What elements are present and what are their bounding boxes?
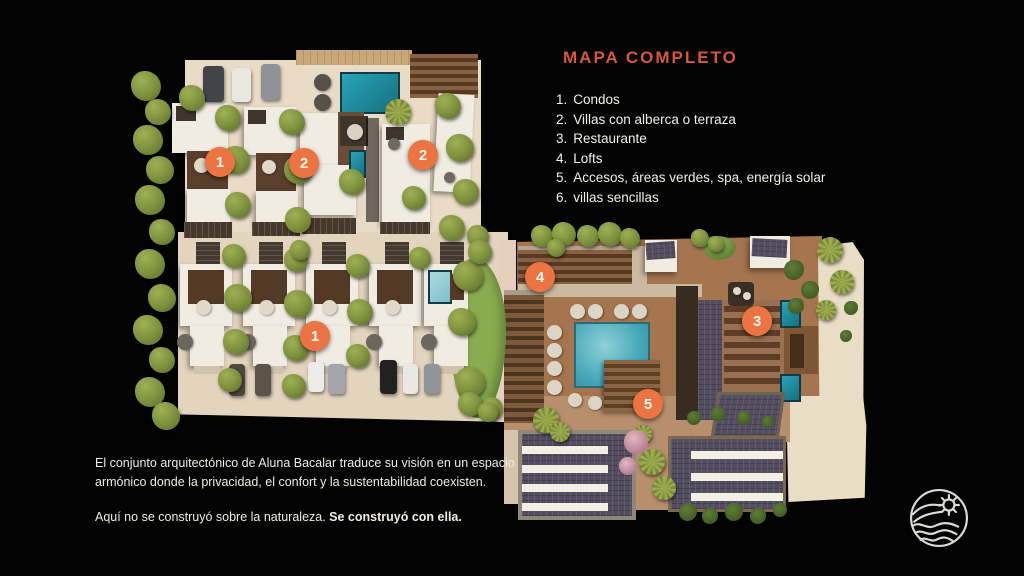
tree	[547, 239, 565, 257]
pool-lounger	[570, 304, 585, 319]
condo-terrace	[377, 270, 413, 304]
pool-lounger	[614, 304, 629, 319]
map-marker-villas: 2	[289, 148, 319, 178]
tree	[339, 169, 365, 195]
tree	[218, 368, 242, 392]
pool-lounger	[314, 94, 331, 111]
tree	[347, 299, 373, 325]
pool-lounger	[547, 343, 562, 358]
legend-item-villas-sencillas: 6.villas sencillas	[556, 188, 896, 208]
tree	[179, 85, 205, 111]
wood-walkway	[296, 50, 412, 65]
solar-walk-stripe	[522, 503, 608, 511]
roof-vent	[444, 172, 455, 183]
solar-array	[518, 430, 636, 520]
shrub	[750, 508, 766, 524]
palm-tree	[817, 237, 843, 263]
dining-table	[733, 287, 741, 295]
palm-tree	[816, 300, 836, 320]
condo-roof-palapa	[259, 242, 283, 266]
palm-tree	[652, 476, 676, 500]
wave-sun-logo-icon	[908, 487, 970, 549]
villa-balcony	[184, 222, 232, 238]
pool-lounger	[547, 325, 562, 340]
tree	[478, 402, 498, 422]
legend-item-villas: 2.Villas con alberca o terraza	[556, 110, 896, 130]
bar-counter	[790, 334, 804, 368]
tree	[135, 185, 165, 215]
condo-roof-pool	[428, 270, 452, 304]
description-text: El conjunto arquitectónico de Aluna Baca…	[95, 454, 525, 527]
page-title: MAPA COMPLETO	[563, 48, 896, 68]
tree	[468, 240, 492, 264]
pool-lounger	[347, 124, 363, 140]
palm-tree	[385, 99, 411, 125]
legend-item-accesos: 5.Accesos, áreas verdes, spa, energía so…	[556, 168, 896, 188]
tree	[290, 240, 310, 260]
patio-umbrella	[177, 334, 193, 350]
pool-lounger	[314, 74, 331, 91]
alley-shadow	[366, 118, 379, 222]
villa-patio	[248, 110, 266, 124]
pergola-deck	[410, 54, 478, 98]
shaded-walkway	[676, 286, 698, 420]
legend-list: 1.Condos 2.Villas con alberca o terraza …	[556, 90, 896, 207]
sand-wedge	[786, 396, 868, 502]
palm-tree	[830, 270, 854, 294]
condo-building	[253, 326, 287, 366]
parked-car	[255, 364, 271, 396]
tree	[133, 125, 163, 155]
condo-porch	[194, 366, 220, 374]
terrace-table	[385, 300, 400, 315]
parked-car	[308, 362, 324, 392]
solar-walk-stripe	[522, 446, 608, 454]
tree	[691, 229, 709, 247]
tree	[453, 261, 483, 291]
solar-roof	[752, 238, 788, 258]
tree	[577, 225, 599, 247]
tree	[223, 329, 249, 355]
palm-tree	[639, 449, 665, 475]
parked-car	[203, 66, 224, 102]
condo-terrace	[188, 270, 224, 304]
legend-item-lofts: 4.Lofts	[556, 149, 896, 169]
condo-terrace	[314, 270, 350, 304]
shrub	[702, 508, 718, 524]
tree	[224, 284, 252, 312]
tree	[346, 344, 370, 368]
tree	[282, 374, 306, 398]
tree	[446, 134, 474, 162]
map-marker-villas: 2	[408, 140, 438, 170]
map-marker-condos: 1	[205, 147, 235, 177]
pool-lounger	[568, 393, 582, 407]
tree	[131, 71, 161, 101]
pool-lounger	[547, 380, 562, 395]
patio-umbrella	[366, 334, 382, 350]
tree	[222, 244, 246, 268]
condo-roof-palapa	[196, 242, 220, 266]
solar-walk-stripe	[522, 465, 608, 473]
description-paragraph-2: Aquí no se construyó sobre la naturaleza…	[95, 508, 525, 527]
pool-lounger	[632, 304, 647, 319]
tree	[620, 228, 640, 248]
tree	[135, 249, 165, 279]
tree	[133, 315, 163, 345]
pool-lounger	[588, 396, 602, 410]
condo-roof-palapa	[322, 242, 346, 266]
tree	[453, 179, 479, 205]
solar-walk-stripe	[691, 493, 783, 501]
tree	[285, 207, 311, 233]
parked-car	[328, 364, 345, 394]
legend-panel: MAPA COMPLETO 1.Condos 2.Villas con albe…	[556, 48, 896, 207]
spa-pergola	[504, 290, 544, 423]
patio-umbrella	[421, 334, 437, 350]
shrub	[773, 503, 787, 517]
solar-walk-stripe	[691, 473, 783, 481]
condo-roof-palapa	[385, 242, 409, 266]
tree	[402, 186, 426, 210]
solar-walk-stripe	[691, 451, 783, 459]
solar-array	[668, 436, 786, 512]
tree	[435, 93, 461, 119]
tree	[215, 105, 241, 131]
legend-item-restaurante: 3.Restaurante	[556, 129, 896, 149]
condo-terrace	[251, 270, 287, 304]
legend-item-condos: 1.Condos	[556, 90, 896, 110]
parked-car	[232, 68, 251, 102]
shrub	[679, 503, 697, 521]
villa-balcony	[380, 222, 430, 234]
map-marker-lofts: 4	[525, 262, 555, 292]
pool-lounger	[547, 361, 562, 376]
terrace-table	[259, 300, 274, 315]
map-marker-spa: 5	[633, 389, 663, 419]
dining-table	[743, 292, 751, 300]
terrace-table	[262, 160, 276, 174]
map-marker-condos: 1	[300, 321, 330, 351]
tree	[148, 284, 176, 312]
description-paragraph-1: El conjunto arquitectónico de Aluna Baca…	[95, 454, 525, 492]
tree	[152, 402, 180, 430]
parked-car	[261, 64, 280, 100]
terrace-table	[322, 300, 337, 315]
palm-tree	[550, 422, 570, 442]
shrub	[725, 503, 743, 521]
tree	[448, 308, 476, 336]
tree	[146, 156, 174, 184]
tree	[279, 109, 305, 135]
tree	[149, 219, 175, 245]
terrace-table	[196, 300, 211, 315]
roof-vent	[388, 138, 400, 150]
restaurant-table-row	[724, 378, 780, 384]
tree	[598, 222, 622, 246]
solar-walk-stripe	[522, 484, 608, 492]
tree	[225, 192, 251, 218]
tree	[284, 290, 312, 318]
map-marker-restaurant: 3	[742, 306, 772, 336]
flowering-tree	[619, 457, 637, 475]
tree	[149, 347, 175, 373]
restaurant-table-row	[724, 354, 780, 360]
flowering-tree	[624, 430, 648, 454]
restaurant-table-row	[724, 342, 780, 348]
pool-lounger	[588, 304, 603, 319]
tree	[708, 236, 724, 252]
solar-roof	[645, 241, 675, 260]
tree	[409, 247, 431, 269]
parked-car	[380, 360, 397, 394]
tree	[346, 254, 370, 278]
restaurant-table-row	[724, 366, 780, 372]
tree	[439, 215, 465, 241]
parked-car	[424, 364, 440, 394]
slide: 1 2 2 1 4 3 5 MAPA COMPLETO 1.Condos 2.V…	[0, 0, 1024, 576]
tree	[145, 99, 171, 125]
condo-building	[190, 326, 224, 366]
parked-car	[403, 364, 418, 394]
